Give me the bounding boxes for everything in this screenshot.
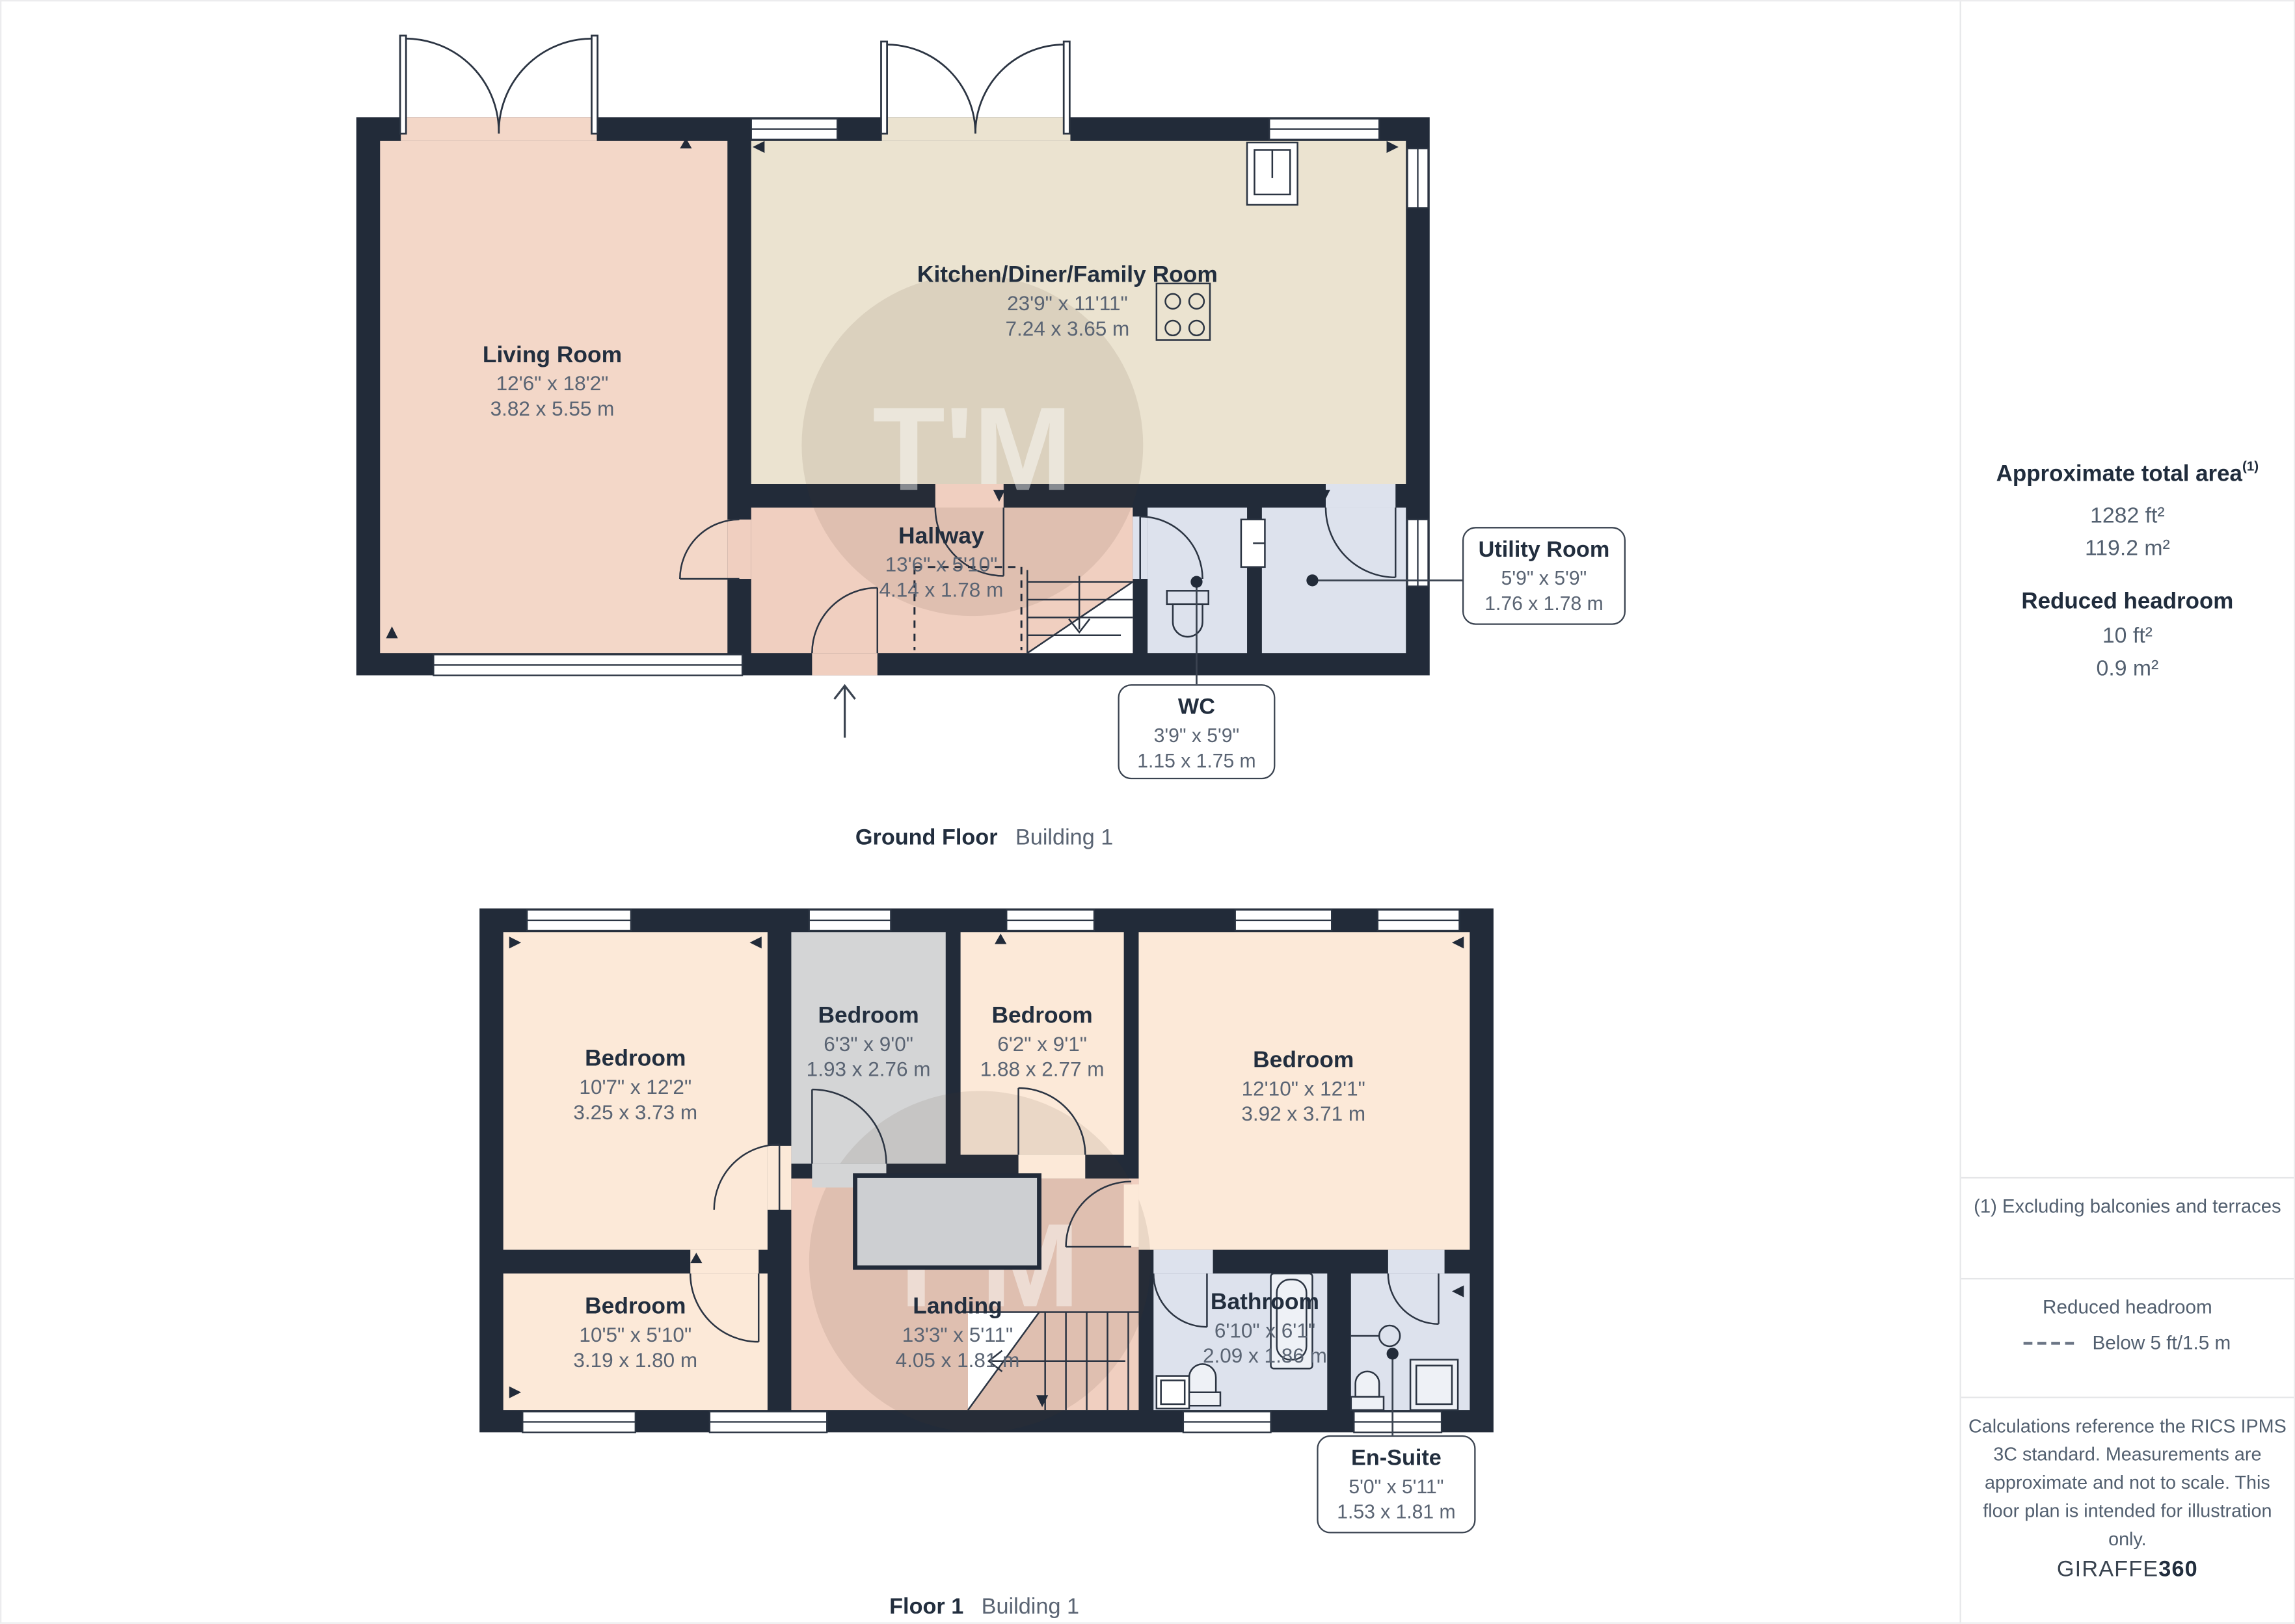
footnote-marker: (1) xyxy=(2242,459,2259,473)
entrance-arrow-icon xyxy=(835,686,855,738)
room-label-bedroom-1: Bedroom 10'7" x 12'2" 3.25 x 3.73 m xyxy=(573,1045,697,1125)
info-sidebar xyxy=(1960,0,2295,1624)
floorplan-page: T'M xyxy=(0,0,2295,1624)
shower-icon xyxy=(1410,1359,1458,1410)
total-area-m: 119.2 m² xyxy=(1960,537,2295,561)
dashed-line-icon xyxy=(2024,1341,2075,1344)
giraffe360-logo: GIRAFFE360 xyxy=(1960,1557,2295,1582)
room-label-bedroom-2: Bedroom 6'3" x 9'0" 1.93 x 2.76 m xyxy=(807,1002,931,1082)
total-area-title: Approximate total area(1) xyxy=(1960,459,2295,488)
reduced-headroom-ft: 10 ft² xyxy=(1960,625,2295,649)
sidebar-divider xyxy=(1961,1278,2295,1279)
total-area-ft: 1282 ft² xyxy=(1960,505,2295,529)
basin-icon xyxy=(1157,1376,1189,1409)
reduced-headroom-m: 0.9 m² xyxy=(1960,658,2295,682)
reduced-headroom-title: Reduced headroom xyxy=(1960,589,2295,616)
sidebar-divider xyxy=(1961,1397,2295,1398)
room-label-bedroom-4: Bedroom 12'10" x 12'1" 3.92 x 3.71 m xyxy=(1241,1046,1365,1126)
callout-en-suite: En-Suite 5'0" x 5'11" 1.53 x 1.81 m xyxy=(1317,1435,1475,1534)
room-label-bedroom-5: Bedroom 10'5" x 5'10" 3.19 x 1.80 m xyxy=(573,1293,697,1373)
room-label-bathroom: Bathroom 6'10" x 6'1" 2.09 x 1.86 m xyxy=(1203,1288,1327,1368)
legend-row: Below 5 ft/1.5 m xyxy=(1960,1331,2295,1353)
stairwell-void xyxy=(855,1176,1040,1268)
room-label-landing: Landing 13'3" x 5'11" 4.05 x 1.81 m xyxy=(896,1293,1020,1373)
room-label-living-room: Living Room 12'6" x 18'2" 3.82 x 5.55 m xyxy=(483,341,622,421)
disclaimer-text: Calculations reference the RICS IPMS 3C … xyxy=(1966,1413,2290,1554)
callout-wc: WC 3'9" x 5'9" 1.15 x 1.75 m xyxy=(1118,684,1275,779)
room-label-hallway: Hallway 13'6" x 5'10" 4.14 x 1.78 m xyxy=(879,522,1004,602)
legend-label: Below 5 ft/1.5 m xyxy=(2093,1331,2231,1353)
sidebar-divider xyxy=(1961,1177,2295,1178)
room-label-bedroom-3: Bedroom 6'2" x 9'1" 1.88 x 2.77 m xyxy=(980,1002,1105,1082)
room-label-kitchen-diner-family-room: Kitchen/Diner/Family Room 23'9" x 11'11"… xyxy=(917,261,1218,341)
area-footnote: (1) Excluding balconies and terraces xyxy=(1960,1195,2295,1217)
callout-utility-room: Utility Room 5'9" x 5'9" 1.76 x 1.78 m xyxy=(1462,527,1626,625)
floor-plan-canvas: T'M xyxy=(0,0,2295,1624)
caption-ground-floor: Ground FloorBuilding 1 xyxy=(855,825,1113,851)
caption-floor-1: Floor 1Building 1 xyxy=(889,1594,1079,1619)
sink-icon xyxy=(1247,142,1298,205)
legend-title: Reduced headroom xyxy=(1960,1296,2295,1318)
cabinet-icon xyxy=(1241,520,1265,567)
